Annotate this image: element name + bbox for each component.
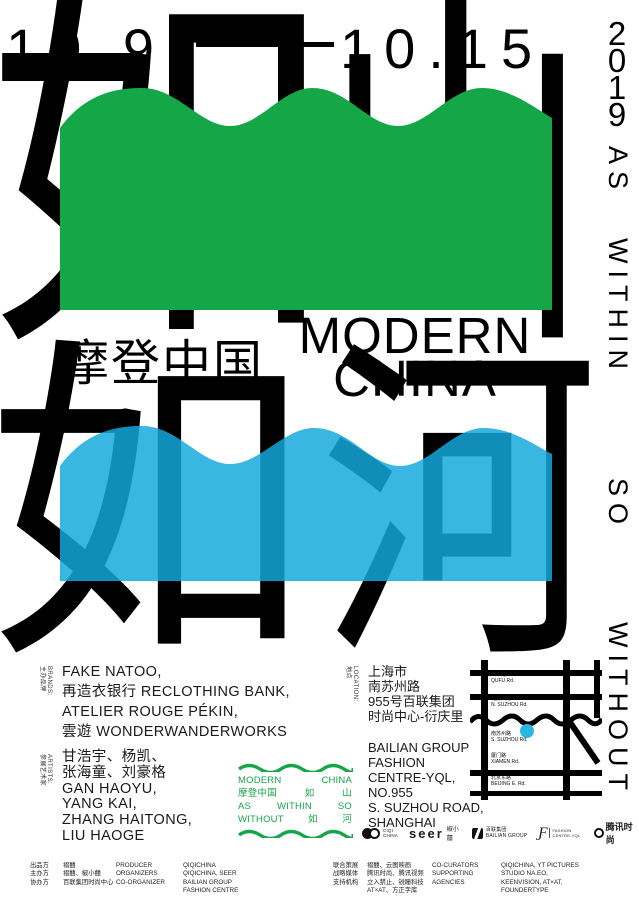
address-line: CENTRE-YQL, <box>368 770 484 785</box>
location-label: 地点 LOCATION: <box>344 666 358 702</box>
address-line: BAILIAN GROUP <box>368 740 484 755</box>
side-word-as: AS <box>602 146 633 196</box>
artists-list: 甘浩宇、杨凯、 张海童、刘豪格 GAN HAOYU, YANG KAI, ZHA… <box>62 750 192 845</box>
brands-label-en: BRANDS: <box>45 666 52 695</box>
credit-value: BAILIAN GROUP <box>183 879 238 887</box>
credit-label: CO-CURATORS <box>432 862 478 870</box>
credit-value: QIQICHINA <box>183 862 238 870</box>
year-2019: 2 0 1 9 <box>598 20 636 128</box>
address-line: 时尚中心-衍庆里 <box>368 709 463 724</box>
stamp-word: 如 <box>305 787 315 800</box>
logo-bailian-group: 百联集团 BAILIAN GROUP <box>472 827 528 839</box>
artists-label-en: ARTISTS: <box>45 754 52 786</box>
tencent-wordmark: 腾讯时尚 <box>606 820 638 846</box>
credit-value: 褶囍、椒小囍 <box>63 870 113 878</box>
logo-tencent-fashion: 腾讯时尚 <box>594 820 638 846</box>
credit-value: STUDIO NA.EO, <box>501 870 579 878</box>
credit-label: 协办方 <box>30 879 49 887</box>
credit-value: 立入禁止、锐瞳科技 <box>367 879 424 887</box>
credit-label: CO-ORGANIZER <box>116 879 165 887</box>
brands-label: 主办品牌 BRANDS: <box>38 666 52 695</box>
artist-item: 张海童、刘豪格 <box>62 766 192 782</box>
credits-values-en-right: QIQICHINA, YT PICTURES STUDIO NA.EO, KEE… <box>501 862 579 895</box>
location-label-cn: 地点 <box>344 666 351 702</box>
street-name-en: N. SUZHOU Rd. <box>491 703 528 709</box>
credit-value: QIQICHINA, YT PICTURES <box>501 862 579 870</box>
credit-value: QIQICHINA, SEER <box>183 870 238 878</box>
location-map: 曲阜路 QUFU Rd. 北苏州路 N. SUZHOU Rd. 南苏州路 S. … <box>470 660 602 800</box>
artist-item: GAN HAOYU, <box>62 782 192 798</box>
poster: 如 山 如 河 10.9 10.15 2 0 1 9 AS WITHIN SO … <box>0 0 639 910</box>
brand-item: 再造衣银行 RECLOTHING BANK, <box>62 682 290 702</box>
brand-item: FAKE NATOO, <box>62 662 290 682</box>
address-line: S. SUZHOU ROAD, <box>368 800 484 815</box>
credit-label: 主办方 <box>30 870 49 878</box>
address-line: 上海市 <box>368 664 463 679</box>
logo-seer: seer 椒小囍 <box>409 824 460 842</box>
qiqichina-circle-icon <box>369 828 380 839</box>
qiqichina-wordmark: CHINA <box>383 833 398 838</box>
stamp-wave-bottom <box>237 828 353 838</box>
credit-label: 战略媒体 <box>333 870 358 878</box>
location-address-cn: 上海市 南苏州路 955号百联集团 时尚中心-衍庆里 <box>368 664 463 724</box>
address-line: 南苏州路 <box>368 679 463 694</box>
artist-item: 甘浩宇、杨凯、 <box>62 750 192 766</box>
date-end: 10.15 <box>340 16 545 81</box>
street-name-en: S. SUZHOU Rd. <box>491 738 527 744</box>
side-word-within: WITHIN <box>602 238 633 376</box>
fashion-centre-mark: Ƒ <box>538 825 547 842</box>
street-name-en: BEIJING E. Rd. <box>491 782 526 788</box>
map-street-label: 北苏州路 N. SUZHOU Rd. <box>491 697 528 709</box>
stamp-word: 如 <box>308 813 318 826</box>
credits-values-en-left: QIQICHINA QIQICHINA, SEER BAILIAN GROUP … <box>183 862 238 895</box>
title-english: MODERN CHINA <box>278 314 552 400</box>
artist-item: LIU HAOGE <box>62 829 192 845</box>
stamp-word: SO <box>338 800 352 813</box>
credit-label: 支持机构 <box>333 879 358 887</box>
map-street-label: 南苏州路 S. SUZHOU Rd. <box>491 732 527 744</box>
stamp-wave-top <box>237 762 353 772</box>
stamp-word: MODERN <box>238 774 281 787</box>
stamp-word: WITHOUT <box>238 813 284 826</box>
credits-roles-cn-right: 联合策展 战略媒体 支持机构 <box>333 862 358 887</box>
map-road-beijing-e <box>470 791 602 796</box>
subtitle-chinese: 摩登中国 <box>60 324 264 395</box>
location-label-en: LOCATION: <box>351 666 358 702</box>
credits-values-cn-left: 褶囍 褶囍、椒小囍 百联集团时尚中心 <box>63 862 113 887</box>
map-street-label: 厦门路 XIAMEN Rd. <box>491 754 519 766</box>
logo-qiqichina: CIQI CHINA <box>362 828 398 839</box>
stamp-word: WITHIN <box>277 800 312 813</box>
credits-roles-cn-left: 出品方 主办方 协办方 <box>30 862 49 887</box>
artists-label: 参展艺术家 ARTISTS: <box>38 754 52 786</box>
side-word-so: SO <box>602 478 633 531</box>
credit-value: KEENVISION, AT×AT, <box>501 879 579 887</box>
credit-label: ORGANIZERS <box>116 870 165 878</box>
bailian-logo-mark <box>472 828 483 839</box>
bailian-wordmark-en: BAILIAN GROUP <box>486 833 528 839</box>
green-mountain-shape <box>60 82 552 310</box>
logo-fashion-centre: Ƒ FASHION CENTRE-YQL <box>538 825 580 842</box>
seer-cn-wordmark: 椒小囍 <box>447 824 460 842</box>
address-line: FASHION <box>368 755 484 770</box>
partner-logos: CIQI CHINA seer 椒小囍 百联集团 BAILIAN GROUP Ƒ… <box>362 822 638 844</box>
address-line: NO.955 <box>368 785 484 800</box>
credit-label: AGENCIES <box>432 879 478 887</box>
credit-value: AT×AT、方正字库 <box>367 887 424 895</box>
stamp-line: AS WITHIN SO <box>238 800 352 813</box>
credit-value: FOUNDERTYPE <box>501 887 579 895</box>
map-diagonal-road <box>470 660 602 800</box>
credits-values-cn-right: 褶囍、云图映画 腾讯时尚、腾讯视频 立入禁止、锐瞳科技 AT×AT、方正字库 <box>367 862 424 895</box>
credit-label: PRODUCER <box>116 862 165 870</box>
year-digit: 9 <box>598 101 636 128</box>
street-name-en: XIAMEN Rd. <box>491 760 519 766</box>
street-name-en: QUFU Rd. <box>491 679 514 685</box>
map-street-label: 曲阜路 QUFU Rd. <box>491 673 514 685</box>
map-road-xiamen <box>470 770 602 776</box>
date-start: 10.9 <box>6 16 167 81</box>
map-street-label: 北京东路 BEIJING E. Rd. <box>491 776 526 788</box>
credit-value: FASHION CENTRE <box>183 887 238 895</box>
tencent-circle-icon <box>594 828 603 838</box>
artist-item: YANG KAI, <box>62 797 192 813</box>
brands-list: FAKE NATOO, 再造衣银行 RECLOTHING BANK, ATELI… <box>62 662 290 742</box>
stamp-word: CHINA <box>321 774 352 787</box>
stamp-word: 山 <box>342 787 352 800</box>
brand-item: 雲遊 WONDERWANDERWORKS <box>62 722 290 742</box>
credit-value: 百联集团时尚中心 <box>63 879 113 887</box>
stamp-word: 河 <box>342 813 352 826</box>
side-word-without: WITHOUT <box>602 622 633 797</box>
credits-roles-en-left: PRODUCER ORGANIZERS CO-ORGANIZER <box>116 862 165 887</box>
location-address-en: BAILIAN GROUP FASHION CENTRE-YQL, NO.955… <box>368 740 484 830</box>
brand-item: ATELIER ROUGE PÉKIN, <box>62 702 290 722</box>
artists-label-cn: 参展艺术家 <box>38 754 45 786</box>
brands-label-cn: 主办品牌 <box>38 666 45 695</box>
credits-roles-en-right: CO-CURATORS SUPPORTING AGENCIES <box>432 862 478 887</box>
address-line: 955号百联集团 <box>368 694 463 709</box>
exhibition-stamp: MODERN CHINA 摩登中国 如 山 AS WITHIN SO WITHO… <box>237 762 353 846</box>
artist-item: ZHANG HAITONG, <box>62 813 192 829</box>
seer-wordmark: seer <box>409 826 444 841</box>
date-range-dash <box>196 42 334 47</box>
credit-value: 腾讯时尚、腾讯视频 <box>367 870 424 878</box>
stamp-line: WITHOUT 如 河 <box>238 813 352 826</box>
stamp-line: MODERN CHINA <box>238 774 352 787</box>
stamp-word: AS <box>238 800 251 813</box>
credit-label: SUPPORTING <box>432 870 478 878</box>
blue-river-shape <box>60 424 552 581</box>
stamp-line: 摩登中国 如 山 <box>238 787 352 800</box>
fashion-centre-text: CENTRE-YQL <box>552 833 580 838</box>
stamp-word: 摩登中国 <box>238 787 277 800</box>
